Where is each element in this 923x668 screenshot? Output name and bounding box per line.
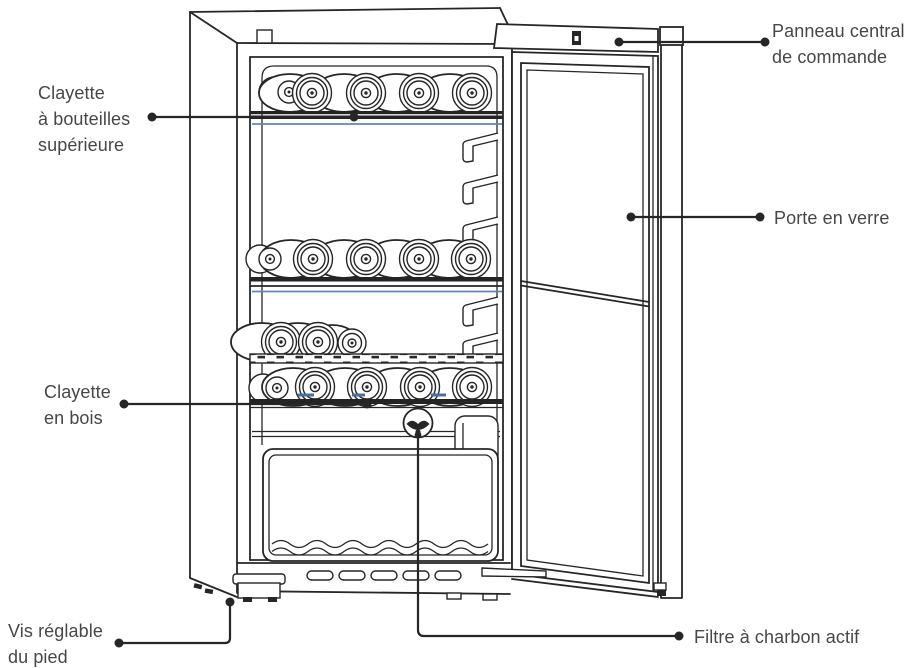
label-glass-door: Porte en verre [774,205,889,231]
base-screw [205,588,214,594]
label-carbon-filter: Filtre à charbon actif [694,624,859,650]
label-adjustable-foot-screw: Vis réglable du pied [8,618,103,668]
wooden-shelf-upper-edge [250,354,503,363]
base-screw [194,583,203,589]
bottle-row-2 [246,240,491,279]
interior [231,74,503,562]
ventilation-slots [307,571,461,580]
bottle-row-upper [259,74,492,113]
shelf-2 [250,277,503,292]
label-control-panel: Panneau central de commande [772,18,905,70]
label-wooden-shelf: Clayette en bois [44,379,111,431]
bottom-compartment [263,449,498,561]
diagram-canvas: Clayette à bouteilles supérieure Panneau… [0,0,923,668]
label-upper-bottle-shelf: Clayette à bouteilles supérieure [38,80,130,158]
glass-door [482,8,683,598]
top-hinge-cover [257,30,272,43]
adjustable-foot [233,574,285,602]
wine-cooler-line-art [0,0,923,668]
